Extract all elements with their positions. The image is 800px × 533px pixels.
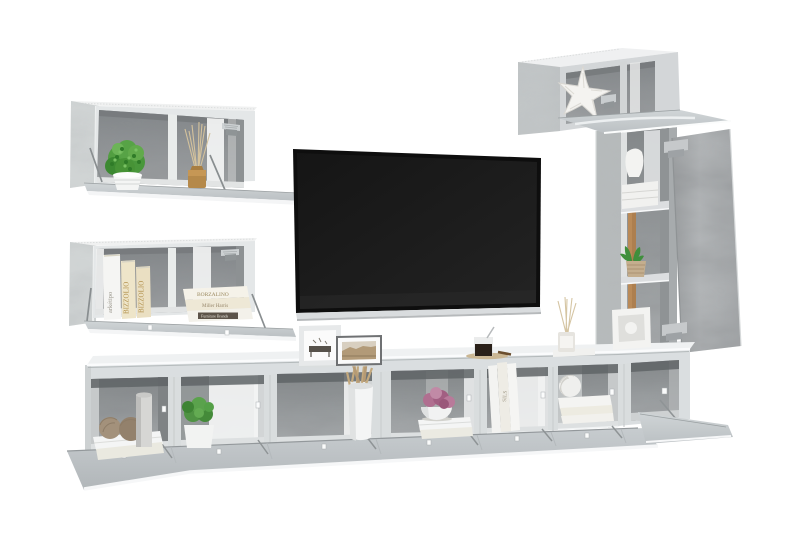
svg-text:Miller Harris: Miller Harris [202,304,228,309]
svg-text:Furniture Brands: Furniture Brands [201,314,229,319]
svg-text:arkétipo: arkétipo [107,292,114,313]
svg-text:BIZZOLIO: BIZZOLIO [138,281,146,313]
svg-text:SILS: SILS [502,390,509,402]
svg-text:BORZALINO: BORZALINO [197,292,229,298]
svg-text:BIZZOLIO: BIZZOLIO [123,282,131,314]
